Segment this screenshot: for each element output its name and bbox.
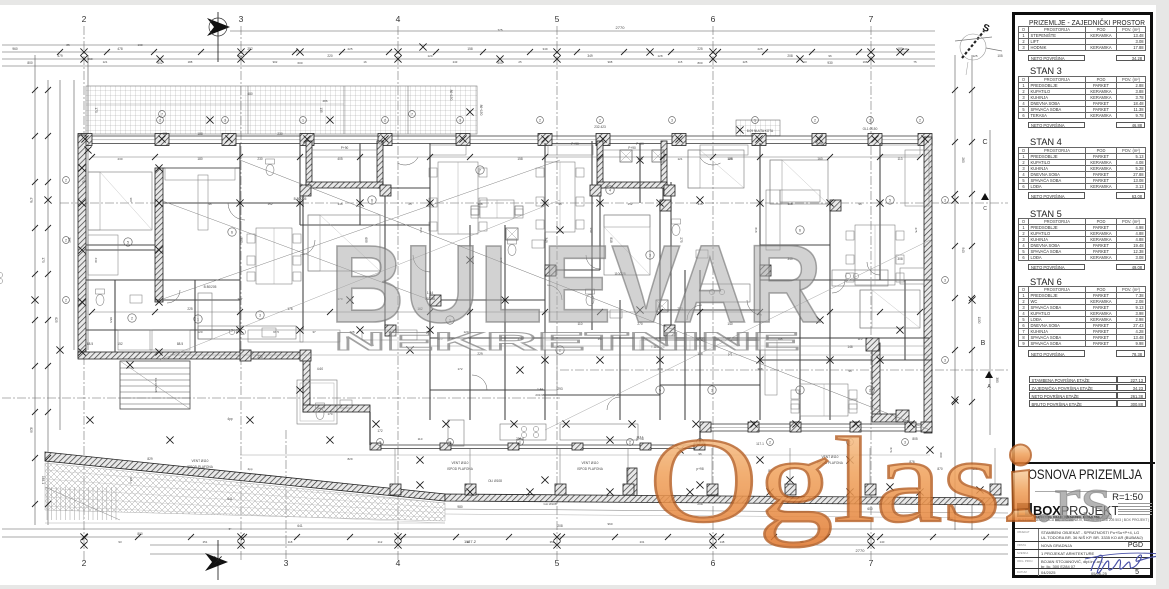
svg-text:Oglas: Oglas [649, 413, 1001, 548]
svg-text:.rs: .rs [1034, 463, 1112, 536]
svg-text:NEKRETNINE: NEKRETNINE [334, 328, 800, 356]
